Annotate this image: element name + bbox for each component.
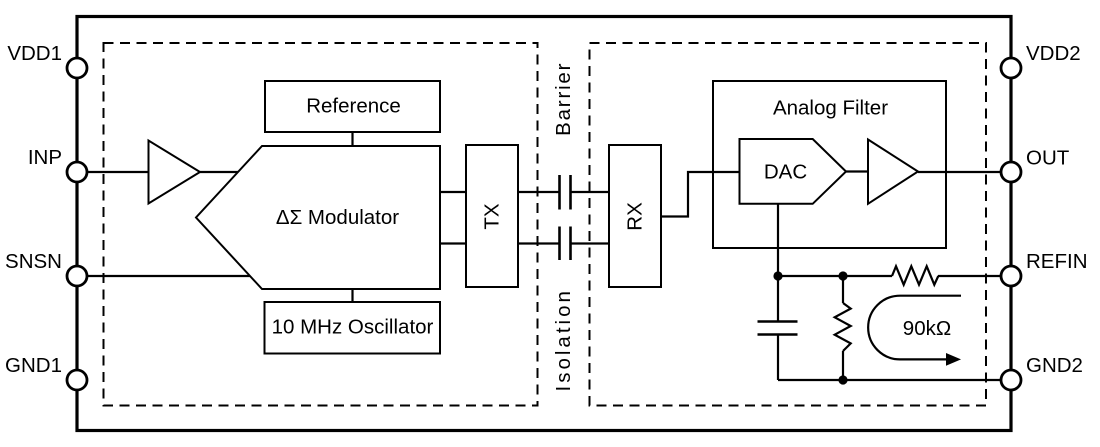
svg-text:Isolation: Isolation: [552, 288, 575, 391]
svg-text:DAC: DAC: [764, 160, 807, 183]
svg-text:RX: RX: [623, 202, 646, 231]
svg-text:90kΩ: 90kΩ: [903, 317, 951, 340]
svg-text:SNSN: SNSN: [5, 250, 62, 273]
svg-text:VDD2: VDD2: [1026, 42, 1081, 65]
svg-text:ΔΣ Modulator: ΔΣ Modulator: [276, 206, 399, 229]
svg-text:VDD1: VDD1: [7, 42, 62, 65]
svg-text:REFIN: REFIN: [1026, 250, 1088, 273]
svg-text:Reference: Reference: [306, 95, 401, 118]
svg-text:TX: TX: [480, 203, 503, 230]
svg-text:Analog Filter: Analog Filter: [773, 97, 888, 120]
svg-text:Barrier: Barrier: [552, 62, 575, 136]
svg-text:GND1: GND1: [5, 354, 62, 377]
svg-text:10 MHz Oscillator: 10 MHz Oscillator: [272, 316, 434, 339]
svg-text:GND2: GND2: [1026, 354, 1083, 377]
svg-text:INP: INP: [28, 146, 62, 169]
svg-text:OUT: OUT: [1026, 146, 1070, 169]
